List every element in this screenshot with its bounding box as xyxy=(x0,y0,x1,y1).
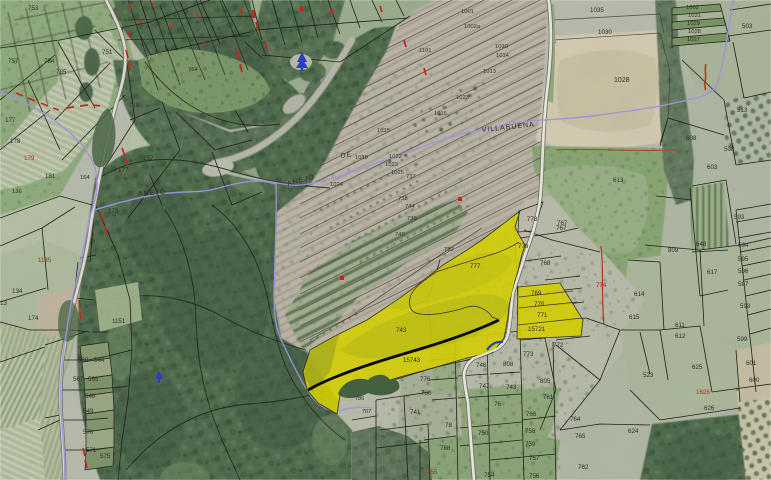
svg-text:1002a: 1002a xyxy=(464,24,481,30)
svg-text:773: 773 xyxy=(523,351,534,358)
svg-text:179: 179 xyxy=(24,155,35,162)
svg-text:784: 784 xyxy=(44,58,55,65)
svg-text:570: 570 xyxy=(83,429,94,436)
svg-text:594: 594 xyxy=(738,242,749,249)
svg-text:756: 756 xyxy=(529,473,540,480)
svg-text:1135: 1135 xyxy=(38,257,52,264)
svg-text:737: 737 xyxy=(406,174,416,180)
svg-text:612: 612 xyxy=(675,333,686,340)
svg-text:15743: 15743 xyxy=(403,357,421,364)
svg-text:1027: 1027 xyxy=(687,37,700,43)
svg-text:767: 767 xyxy=(557,220,568,227)
svg-text:600: 600 xyxy=(749,377,760,384)
svg-text:76: 76 xyxy=(494,401,501,408)
svg-text:599: 599 xyxy=(737,336,748,343)
svg-text:598: 598 xyxy=(740,303,751,310)
svg-text:601: 601 xyxy=(746,360,757,367)
svg-text:15721: 15721 xyxy=(528,326,546,333)
svg-text:746: 746 xyxy=(476,362,487,369)
svg-text:1015: 1015 xyxy=(377,128,390,134)
svg-text:596: 596 xyxy=(738,268,749,275)
svg-text:1029: 1029 xyxy=(687,21,700,27)
svg-text:1019: 1019 xyxy=(355,155,368,161)
svg-text:13: 13 xyxy=(0,300,7,307)
svg-text:1151: 1151 xyxy=(112,318,126,325)
svg-text:567: 567 xyxy=(73,376,84,383)
svg-text:771: 771 xyxy=(537,312,548,319)
svg-text:759: 759 xyxy=(525,441,536,448)
svg-text:565: 565 xyxy=(88,376,99,383)
svg-text:603: 603 xyxy=(707,164,718,171)
svg-text:743: 743 xyxy=(506,384,517,391)
svg-text:776: 776 xyxy=(420,376,431,383)
svg-text:738: 738 xyxy=(398,196,408,202)
svg-text:772: 772 xyxy=(553,342,564,349)
svg-text:544: 544 xyxy=(94,357,105,364)
svg-text:625: 625 xyxy=(692,364,703,371)
svg-text:173: 173 xyxy=(108,208,119,215)
svg-text:597: 597 xyxy=(738,281,749,288)
svg-text:568: 568 xyxy=(78,357,89,364)
svg-text:1028: 1028 xyxy=(688,29,701,35)
svg-text:181: 181 xyxy=(45,173,56,180)
svg-text:762: 762 xyxy=(578,464,589,471)
svg-text:549: 549 xyxy=(83,408,94,415)
svg-text:177: 177 xyxy=(5,117,16,124)
svg-text:777: 777 xyxy=(470,263,481,270)
svg-text:745: 745 xyxy=(395,232,405,238)
svg-text:780: 780 xyxy=(421,390,432,397)
svg-text:615: 615 xyxy=(629,314,640,321)
svg-text:761: 761 xyxy=(543,394,554,401)
svg-text:808: 808 xyxy=(503,361,514,368)
svg-text:785: 785 xyxy=(56,69,67,76)
svg-text:1013: 1013 xyxy=(483,69,496,75)
svg-text:571: 571 xyxy=(86,447,97,454)
svg-text:764: 764 xyxy=(570,416,581,423)
svg-text:503: 503 xyxy=(742,23,753,30)
svg-text:739: 739 xyxy=(407,216,417,222)
svg-text:174: 174 xyxy=(28,315,39,322)
svg-text:1030: 1030 xyxy=(598,29,612,36)
svg-text:1010: 1010 xyxy=(495,44,508,50)
svg-text:805: 805 xyxy=(540,378,551,385)
svg-text:1023: 1023 xyxy=(456,95,469,101)
svg-text:744: 744 xyxy=(405,204,415,210)
svg-text:770: 770 xyxy=(534,301,545,308)
svg-text:1101: 1101 xyxy=(419,48,431,54)
svg-text:809: 809 xyxy=(668,247,679,254)
svg-text:1016: 1016 xyxy=(434,111,447,117)
svg-text:164: 164 xyxy=(80,175,90,181)
svg-text:757: 757 xyxy=(529,455,540,462)
svg-text:764: 764 xyxy=(188,67,198,73)
svg-text:766: 766 xyxy=(526,411,537,418)
svg-text:750: 750 xyxy=(478,430,489,437)
svg-text:753: 753 xyxy=(28,5,39,12)
svg-text:513: 513 xyxy=(737,107,748,114)
svg-text:178: 178 xyxy=(10,138,21,145)
svg-text:136: 136 xyxy=(12,189,22,195)
svg-text:765: 765 xyxy=(575,433,586,440)
svg-text:1002: 1002 xyxy=(686,5,699,11)
svg-text:1025: 1025 xyxy=(391,170,404,176)
svg-text:617: 617 xyxy=(707,269,718,276)
svg-text:788: 788 xyxy=(440,445,451,452)
svg-text:177: 177 xyxy=(118,167,129,174)
svg-text:626: 626 xyxy=(704,405,715,412)
svg-text:1022: 1022 xyxy=(389,154,402,160)
svg-text:769: 769 xyxy=(531,290,542,297)
svg-text:1035: 1035 xyxy=(590,7,604,14)
svg-text:778: 778 xyxy=(527,216,538,223)
svg-text:593: 593 xyxy=(734,214,745,221)
svg-text:758: 758 xyxy=(525,428,536,435)
svg-text:614: 614 xyxy=(634,291,645,298)
svg-text:774: 774 xyxy=(596,282,607,289)
svg-text:782: 782 xyxy=(444,247,454,253)
svg-text:78: 78 xyxy=(445,422,452,429)
svg-text:611: 611 xyxy=(675,322,685,329)
svg-text:786: 786 xyxy=(355,396,364,402)
svg-text:741: 741 xyxy=(410,409,421,416)
svg-text:743: 743 xyxy=(396,327,407,334)
svg-text:1626: 1626 xyxy=(696,389,710,396)
svg-text:152: 152 xyxy=(143,155,154,162)
svg-text:751: 751 xyxy=(102,49,113,56)
svg-text:595: 595 xyxy=(738,256,749,263)
svg-text:776: 776 xyxy=(518,243,529,250)
svg-text:608: 608 xyxy=(686,135,697,142)
svg-text:1014: 1014 xyxy=(496,53,510,59)
svg-text:523: 523 xyxy=(643,372,654,379)
svg-text:1001: 1001 xyxy=(461,9,474,15)
svg-text:707: 707 xyxy=(362,409,371,415)
svg-text:575: 575 xyxy=(100,453,111,460)
svg-text:648: 648 xyxy=(696,241,707,248)
svg-text:613: 613 xyxy=(613,177,624,184)
svg-text:624: 624 xyxy=(628,428,639,435)
svg-text:134: 134 xyxy=(12,288,23,295)
svg-text:755: 755 xyxy=(427,469,438,476)
svg-text:1028: 1028 xyxy=(614,77,630,84)
svg-text:1024: 1024 xyxy=(330,182,344,188)
svg-text:757: 757 xyxy=(8,58,19,65)
svg-text:747: 747 xyxy=(479,383,490,390)
svg-text:508: 508 xyxy=(724,146,735,153)
svg-text:718: 718 xyxy=(129,102,140,109)
svg-text:754: 754 xyxy=(484,472,495,479)
svg-text:768: 768 xyxy=(540,260,551,267)
svg-text:548: 548 xyxy=(85,393,96,400)
svg-text:1023: 1023 xyxy=(385,162,398,168)
svg-text:1031: 1031 xyxy=(688,13,701,19)
